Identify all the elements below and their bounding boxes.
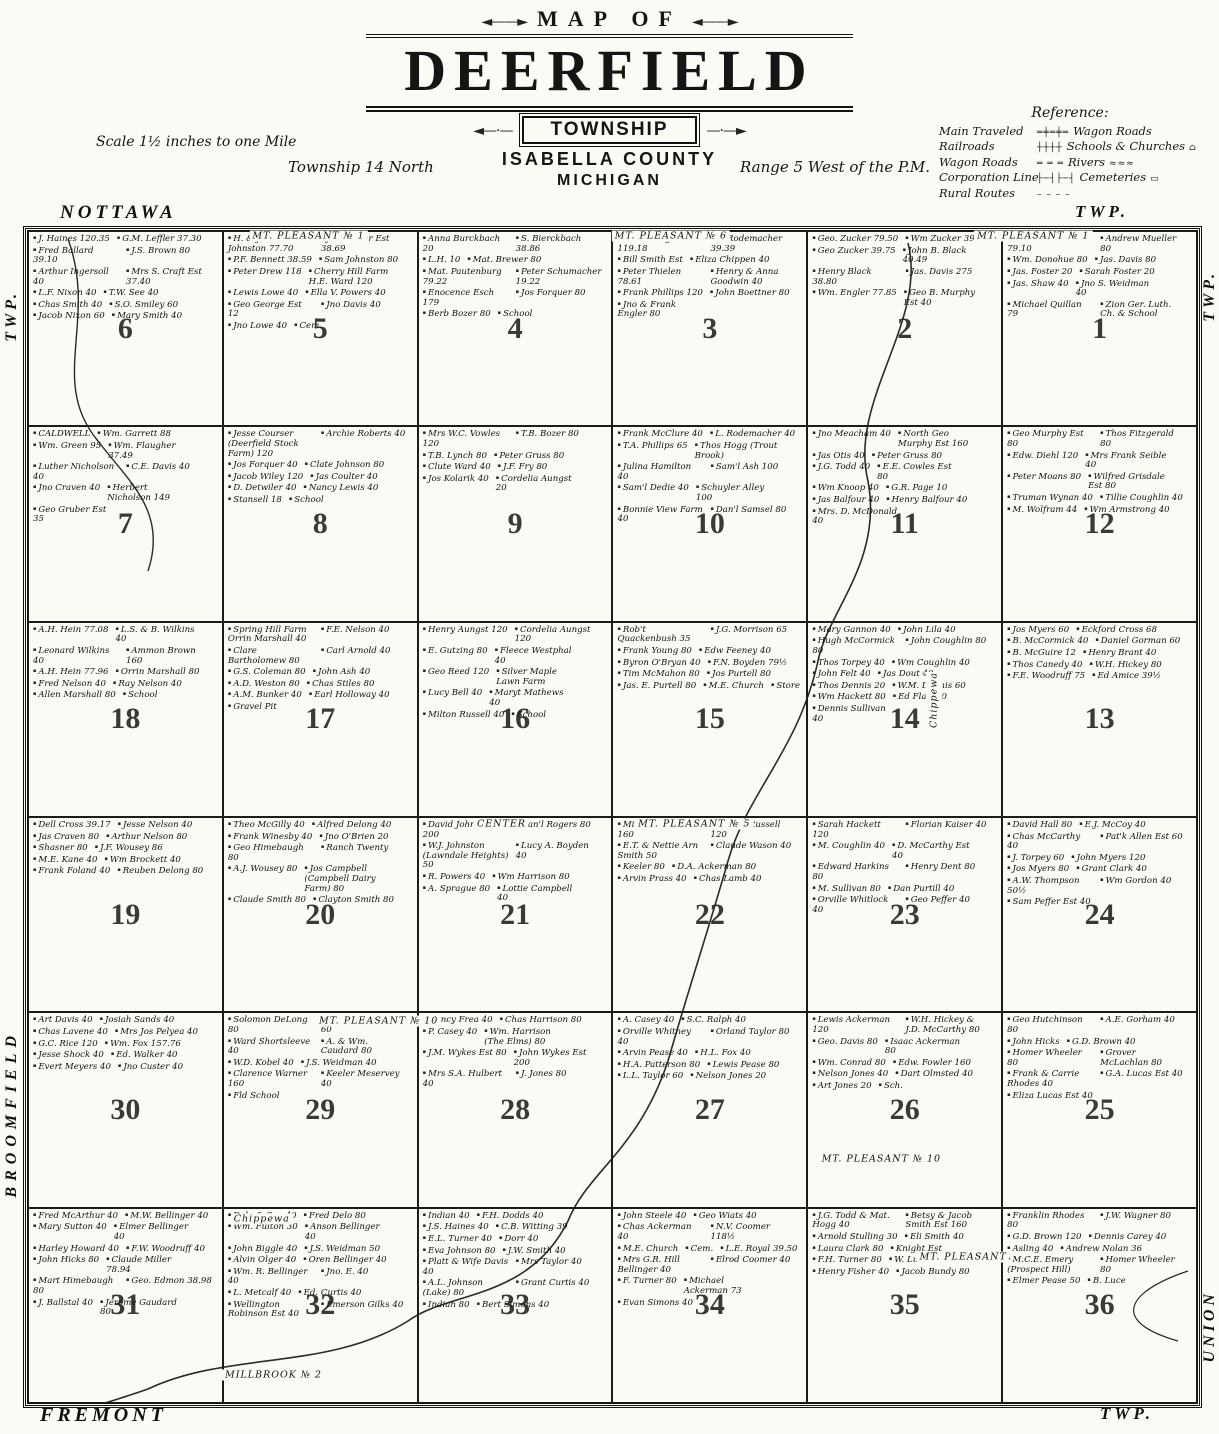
section-cell-23: Sarah Hackett 120Florian Kaiser 40M. Cou… xyxy=(807,817,1002,1012)
parcel-label: G.A. Lucas Est 40 xyxy=(1100,1070,1182,1089)
parcel-label: S.O. Smiley 60 xyxy=(109,301,178,311)
legend-symbol: ═ ═ ═ xyxy=(1037,158,1064,170)
parcel-label: Geo Murphy Est 80 xyxy=(1007,430,1093,449)
section-cell-36: Franklin Rhodes 80J.W. Wagner 80G.D. Bro… xyxy=(1002,1208,1197,1403)
parcel-label: Wm. Green 95 xyxy=(33,442,101,461)
parcel-label: Frank & Carrie Rhodes 40 xyxy=(1007,1070,1093,1089)
legend-row: Wagon Roads═ ═ ═Rivers≈≈≈ xyxy=(939,155,1201,171)
parcel-label: Betsy & Jacob Smith Est 160 xyxy=(905,1212,991,1231)
border-label-broomfield: BROOMFIELD xyxy=(3,1030,21,1198)
parcel-label: Lottie Campbell 40 xyxy=(497,885,583,904)
legend-right-label: Wagon Roads xyxy=(1073,124,1152,140)
parcel-label: A.J. Wousey 80 xyxy=(228,865,298,894)
parcel-label: Henry Fisher 40 xyxy=(812,1268,889,1278)
parcel-label: J.G. Morrison 65 xyxy=(710,626,787,645)
parcel-label: John Wykes Est 200 xyxy=(514,1049,600,1068)
section-cell-33: Indian 40F.H. Dodds 40J.S. Haines 40C.B.… xyxy=(418,1208,613,1403)
parcel-label: Keeler Meservey 40 xyxy=(321,1070,407,1089)
parcel-label: Dennis Carey 40 xyxy=(1089,1233,1167,1243)
parcel-label: Edw. Diehl 120 xyxy=(1007,452,1078,471)
parcel-label: T.B. Lynch 80 xyxy=(423,452,487,462)
section-cell-35: J.G. Todd & Mat. Hogg 40Betsy & Jacob Sm… xyxy=(807,1208,1002,1403)
parcel-label: Jos Forquer 40 xyxy=(228,461,298,471)
legend-symbol-2: ▭ xyxy=(1150,173,1160,185)
parcel-label: Shasner 80 xyxy=(33,844,88,854)
parcel-label: L.L. Taylor 60 xyxy=(617,1072,683,1082)
parcel-label: A.H. Hein 77.96 xyxy=(33,668,108,678)
parcel-label: Spring Hill Farm Orrin Marshall 40 xyxy=(228,626,314,645)
parcel-label: Julina Hamilton 40 xyxy=(617,463,703,482)
parcel-label: Wm Gordon 40 xyxy=(1100,877,1171,896)
parcel-label: W.H. Hickey & J.D. McCarthy 80 xyxy=(905,1016,991,1035)
parcel-label: Dell Cross 39.17 xyxy=(33,821,111,831)
legend-symbol-2: ⌂ xyxy=(1189,142,1197,154)
parcel-label: Silver Maple Lawn Farm xyxy=(496,668,582,687)
parcel-label: Mrs Frank Seible 40 xyxy=(1085,452,1171,471)
parcel-label: Jno Davis 40 xyxy=(321,301,381,320)
border-label-twp-top: TWP. xyxy=(1075,202,1129,222)
parcel-label: G.M. Leffler 37.30 xyxy=(117,235,202,245)
parcel-label: Arvin Prass 40 xyxy=(617,875,686,885)
parcel-label: F.H. Dodds 40 xyxy=(477,1212,544,1222)
section-number: 35 xyxy=(890,1288,920,1322)
parcel-label: R. Powers 40 xyxy=(423,873,486,883)
parcel-label: J.S. Haines 40 xyxy=(423,1223,489,1233)
parcel-label: Jno Custer 40 xyxy=(118,1063,183,1073)
parcel-label: Clarence Warner 160 xyxy=(228,1070,314,1089)
parcel-label: B. McGuire 12 xyxy=(1007,649,1076,659)
parcel-label: John Felt 40 xyxy=(812,670,870,680)
legend-symbol: ├─┤├─┤ xyxy=(1037,173,1076,185)
parcel-label: School xyxy=(511,711,546,721)
legend-right-label: Rivers xyxy=(1068,155,1105,171)
parcel-label: Wm. R. Bellinger 40 xyxy=(228,1268,314,1287)
section-cell-4: Anna Burckbach 20S. Bierckbach 38.86L.H.… xyxy=(418,231,613,426)
border-label-twp-bottom: TWP. xyxy=(1100,1404,1154,1424)
section-cell-1: Norman Webber 79.10Andrew Mueller 80Wm. … xyxy=(1002,231,1197,426)
parcel-label: Milton Russell 40 xyxy=(423,711,505,721)
parcel-label: Reuben Delong 80 xyxy=(117,867,203,877)
parcel-label: John Steele 40 xyxy=(617,1212,686,1222)
parcel-label: Jno S. Weidman 40 xyxy=(1076,280,1162,299)
parcel-label: Clate Johnson 80 xyxy=(305,461,385,471)
legend-left-label: Rural Routes xyxy=(939,186,1033,202)
parcel-label: Wilfred Grisdale Est 80 xyxy=(1088,473,1174,492)
parcel-label: Josiah Sands 40 xyxy=(100,1016,175,1026)
parcel-label: David Hall 80 xyxy=(1007,821,1072,831)
section-cell-10: Frank McClure 40L. Rodemacher 40T.A. Phi… xyxy=(612,426,807,621)
parcel-label: Harley Howard 40 xyxy=(33,1245,119,1255)
parcel-label: Grant Curtis 40 xyxy=(516,1279,590,1298)
parcel-label: L. Metcalf 40 xyxy=(228,1289,291,1299)
parcel-label: E.L. Turner 40 xyxy=(423,1235,492,1245)
parcel-label: Geo Zucker 39.75 xyxy=(812,247,895,266)
section-cell-15: Rob't Quackenbush 35J.G. Morrison 65Fran… xyxy=(612,622,807,817)
parcel-label: Elmer Pease 50 xyxy=(1007,1277,1080,1287)
parcel-label: Geo Wiats 40 xyxy=(693,1212,756,1222)
parcel-label: John Lila 40 xyxy=(898,626,956,636)
parcel-label: Asling 40 xyxy=(1007,1245,1053,1255)
parcel-label: Chas Ackerman 40 xyxy=(617,1223,703,1242)
parcel-label: Jos Forquer 80 xyxy=(516,289,586,308)
township-line: Township 14 North xyxy=(288,158,434,176)
parcel-label: Jno Meacham 40 xyxy=(812,430,891,449)
legend-symbol: ═╪═╪═ xyxy=(1037,127,1069,139)
parcel-label: J.F. Fry 80 xyxy=(498,463,548,473)
section-cell-12: Geo Murphy Est 80Thos Fitzgerald 80Edw. … xyxy=(1002,426,1197,621)
parcel-label: Jas. Foster 20 xyxy=(1007,268,1072,278)
parcel-label: B. Luce xyxy=(1087,1277,1125,1287)
parcel-label: John Myers 120 xyxy=(1071,854,1145,864)
section-cell-26: Lewis Ackerman 120W.H. Hickey & J.D. McC… xyxy=(807,1012,1002,1207)
parcel-label: Frank Phillips 120 xyxy=(617,289,702,299)
parcel-label: Thos Hogg (Trout Brook) xyxy=(695,442,781,461)
parcel-label: Jacob Bundy 80 xyxy=(896,1268,970,1278)
parcel-label: Sam Peffer Est 40 xyxy=(1007,898,1091,908)
section-cell-17: Spring Hill Farm Orrin Marshall 40F.E. N… xyxy=(223,622,418,817)
parcel-label: E.T. & Nettie Arn Smith 50 xyxy=(617,842,703,861)
parcel-label: Anna Burckbach 20 xyxy=(423,235,509,254)
section-number: 36 xyxy=(1085,1288,1115,1322)
parcel-label: Mary Sutton 40 xyxy=(33,1223,107,1242)
parcel-label: Wm. Conrad 80 xyxy=(812,1059,886,1069)
road-label: MT. PLEASANT № 1 xyxy=(249,230,367,241)
parcel-label: Lewis Pease 80 xyxy=(707,1061,779,1071)
parcel-label: Wm. Garrett 88 xyxy=(97,430,171,440)
parcel-label: C.B. Witting 39 xyxy=(496,1223,568,1233)
parcel-label: Clute Ward 40 xyxy=(423,463,491,473)
parcel-label: Arthur Nelson 80 xyxy=(106,833,187,843)
section-number: 2 xyxy=(897,312,912,346)
parcel-label: Mrs. D. McDonald 40 xyxy=(812,508,898,527)
parcel-label: Chas Lamb 40 xyxy=(694,875,762,885)
parcel-label: Isaac Ackerman 80 xyxy=(885,1038,971,1057)
parcel-label: B. McCormick 40 xyxy=(1007,637,1088,647)
parcel-label: Chas McCarthy 40 xyxy=(1007,833,1093,852)
parcel-label: Sarah Hackett 120 xyxy=(812,821,898,840)
legend-left-label: Corporation Line xyxy=(939,170,1033,186)
parcel-label: Jesse Shock 40 xyxy=(33,1051,104,1061)
parcel-label: J. Ballstal 40 xyxy=(33,1299,93,1318)
parcel-label: Daniel Gorman 60 xyxy=(1095,637,1180,647)
parcel-label: G.D. Brown 40 xyxy=(1067,1038,1136,1048)
parcel-label: Jas. Davis 275 xyxy=(905,268,972,287)
parcel-label: Orland Taylor 80 xyxy=(710,1028,789,1047)
parcel-label: Geo Gruber Est 35 xyxy=(33,506,119,525)
parcel-label: J. Torpey 60 xyxy=(1007,854,1064,864)
parcel-label: Jas. Shaw 40 xyxy=(1007,280,1068,299)
parcel-label: Allen Marshall 80 xyxy=(33,691,116,701)
parcel-label: Jacob Wiley 120 xyxy=(228,473,303,483)
parcel-label: Michael Ackerman 73 xyxy=(684,1277,770,1296)
legend-row: Rural Routes– – – – xyxy=(939,186,1201,202)
parcel-label: Tillie Coughlin 40 xyxy=(1100,494,1183,504)
legend-symbol-2: ≈≈≈ xyxy=(1109,158,1135,170)
parcel-label: Geo George Est 12 xyxy=(228,301,314,320)
parcel-label: Mrs Jos Pelyea 40 xyxy=(115,1028,198,1038)
parcel-label: M. Sullivan 80 xyxy=(812,885,881,895)
parcel-label: Ranch Twenty xyxy=(321,844,389,863)
parcel-label: Bill Smith Est xyxy=(617,256,682,266)
parcel-label: E.E. Cowles Est 80 xyxy=(877,463,963,482)
parcel-label: J.S. Brown 80 xyxy=(126,247,190,266)
parcel-label: Andrew Mueller 80 xyxy=(1100,235,1186,254)
parcel-label: S.C. Ralph 40 xyxy=(681,1016,746,1026)
map-of-label: MAP OF xyxy=(537,6,682,31)
parcel-label: W.J. Johnston (Lawndale Heights) 50 xyxy=(423,842,509,871)
parcel-label: A.D. Weston 80 xyxy=(228,680,300,690)
parcel-label: Arvin Pease 40 xyxy=(617,1049,687,1059)
section-cell-5: H. & John Johnston 77.70Jos. Weber Est 3… xyxy=(223,231,418,426)
parcel-label: Evan Simons 40 xyxy=(617,1299,692,1309)
parcel-label: Emerson Gilks 40 xyxy=(321,1301,404,1320)
parcel-label: Peter Gruss 80 xyxy=(494,452,564,462)
parcel-label: Maryt Mathews 40 xyxy=(489,689,575,708)
parcel-label: Henry & Anna Goodwin 40 xyxy=(710,268,796,287)
parcel-label: Nelson Jones 40 xyxy=(812,1070,888,1080)
parcel-label: M.W. Bellinger 40 xyxy=(125,1212,208,1222)
parcel-label: School xyxy=(123,691,158,701)
parcel-label: Jos Purtell 80 xyxy=(707,670,771,680)
parcel-label: E.J. McCoy 40 xyxy=(1079,821,1146,831)
section-cell-11: Jno Meacham 40North Geo Murphy Est 160Ja… xyxy=(807,426,1002,621)
parcel-label: Ward Shortsleeve 40 xyxy=(228,1038,314,1057)
flourish-arrow-left2: ◄—·— xyxy=(473,123,512,139)
parcel-label: Geo. Davis 80 xyxy=(812,1038,878,1057)
parcel-label: T.A. Phillips 65 xyxy=(617,442,687,461)
parcel-label: Frank Young 80 xyxy=(617,647,691,657)
parcel-label: Mat. Brewer 80 xyxy=(467,256,541,266)
parcel-label: Wm Hackett 80 xyxy=(812,693,885,703)
parcel-label: J. Jones 80 xyxy=(516,1070,567,1089)
section-cell-18: A.H. Hein 77.08L.S. & B. Wilkins 40Leona… xyxy=(28,622,223,817)
parcel-label: Andrew Nolan 36 xyxy=(1060,1245,1142,1255)
parcel-label: W.H. Hickey 80 xyxy=(1089,661,1161,671)
parcel-label: Cordelia Aungst 20 xyxy=(496,475,582,494)
parcel-label: Indian 80 xyxy=(423,1301,470,1311)
parcel-label: Enocence Esch 179 xyxy=(423,289,509,308)
parcel-label: Edward Harkins 80 xyxy=(812,863,898,882)
parcel-label: Jas Otis 40 xyxy=(812,452,864,462)
parcel-label: D. McCarthy Est 40 xyxy=(892,842,978,861)
parcel-label: Eli Smith 40 xyxy=(905,1233,964,1243)
parcel-label: Henry Balfour 40 xyxy=(886,496,967,506)
section-cell-34: John Steele 40Geo Wiats 40Chas Ackerman … xyxy=(612,1208,807,1403)
parcel-label: Orrin Marshall 80 xyxy=(115,668,199,678)
parcel-label: Jacob Nixon 60 xyxy=(33,312,105,322)
parcel-label: Eva Johnson 80 xyxy=(423,1247,496,1257)
parcel-label: Hugh McCormick 80 xyxy=(812,637,898,656)
parcel-label: Dorr 40 xyxy=(499,1235,538,1245)
section-cell-13: Jos Myers 60Eckford Cross 68B. McCormick… xyxy=(1002,622,1197,817)
parcel-label: W.D. Kobel 40 xyxy=(228,1059,294,1069)
parcel-label: Theo McGilly 40 xyxy=(228,821,305,831)
section-cell-6: J. Haines 120.35G.M. Leffler 37.30Fred B… xyxy=(28,231,223,426)
parcel-label: Jerome Gaudard 80 xyxy=(100,1299,186,1318)
parcel-label: Solomon DeLong 80 xyxy=(228,1016,314,1035)
map-header: ◄——►MAP OF◄——► DEERFIELD ◄—·—TOWNSHIP—·—… xyxy=(0,0,1219,228)
section-number: 13 xyxy=(1085,702,1115,736)
section-number: 8 xyxy=(313,507,328,541)
section-cell-20: Theo McGilly 40Alfred Delong 40Frank Win… xyxy=(223,817,418,1012)
parcel-label: Sam'l Ash 100 xyxy=(710,463,778,482)
parcel-label: Indian 40 xyxy=(423,1212,470,1222)
parcel-label: Jas Coulter 40 xyxy=(310,473,377,483)
legend-left-label: Main Traveled xyxy=(939,124,1033,140)
parcel-label: Lewis Lowe 40 xyxy=(228,289,298,299)
river-label: Chippewa xyxy=(925,672,942,728)
parcel-label: Fred Ballard 39.10 xyxy=(33,247,119,266)
parcel-label: Peter Drew 118 xyxy=(228,268,302,287)
parcel-label: A.L. Johnson (Lake) 80 xyxy=(423,1279,509,1298)
legend-left-label: Railroads xyxy=(939,139,1033,155)
parcel-label: Dan Purtill 40 xyxy=(888,885,954,895)
parcel-label: Jesse Courser (Deerfield Stock Farm) 120 xyxy=(228,430,314,459)
section-cell-7: CALDWELLWm. Garrett 88Wm. Green 95Wm. Fl… xyxy=(28,426,223,621)
parcel-label: CALDWELL xyxy=(33,430,90,440)
scale-note: Scale 1½ inches to one Mile xyxy=(96,134,296,150)
section-cell-22: Milton Russell 160Wesley Russell 120E.T.… xyxy=(612,817,807,1012)
parcel-label: Henry Dent 80 xyxy=(905,863,975,882)
section-cell-14: Mary Gannon 40John Lila 40Hugh McCormick… xyxy=(807,622,1002,817)
road-label: MILLBROOK № 2 xyxy=(222,1369,325,1380)
parcel-label: Tim McMahon 80 xyxy=(617,670,699,680)
parcel-label: Laura Clark 80 xyxy=(812,1245,883,1255)
range-line: Range 5 West of the P.M. xyxy=(740,158,930,176)
parcel-label: T.W. See 40 xyxy=(103,289,158,299)
parcel-label: Sam Johnston 80 xyxy=(319,256,398,266)
legend-right-label: Schools & Churches xyxy=(1067,139,1185,155)
river-label: Chippewa xyxy=(231,1213,293,1224)
parcel-label: Clare Bartholomew 80 xyxy=(228,647,314,666)
legend-title: Reference: xyxy=(939,104,1201,123)
parcel-label: G.S. Coleman 80 xyxy=(228,668,306,678)
parcel-label: Wm. Fulton 30 xyxy=(228,1223,298,1242)
parcel-label: A. Sprague 80 xyxy=(423,885,490,904)
parcel-label: John Biggle 40 xyxy=(228,1245,297,1255)
parcel-label: Earl Holloway 40 xyxy=(309,691,390,701)
township-label: TOWNSHIP xyxy=(522,116,696,144)
parcel-label: H.L. Fox 40 xyxy=(695,1049,751,1059)
parcel-label: Thos Fitzgerald 80 xyxy=(1100,430,1186,449)
section-number: 28 xyxy=(500,1093,530,1127)
parcel-label: Jno Craven 40 xyxy=(33,484,100,503)
parcel-label: Ray Nelson 40 xyxy=(113,680,182,690)
parcel-label: Lucy Bell 40 xyxy=(423,689,483,708)
parcel-label: Anson Bellinger 40 xyxy=(305,1223,391,1242)
section-cell-30: Art Davis 40Josiah Sands 40Chas Lavene 4… xyxy=(28,1012,223,1207)
parcel-label: Geo Himebaugh 80 xyxy=(228,844,314,863)
parcel-label: A.E. Gorham 40 xyxy=(1100,1016,1175,1035)
parcel-label: J.G. Todd 40 xyxy=(812,463,870,482)
parcel-label: Cordelia Aungst 120 xyxy=(515,626,601,645)
parcel-label: F.N. Boyden 79½ xyxy=(708,659,788,669)
parcel-label: Eliza Lucas Est 40 xyxy=(1007,1092,1093,1102)
parcel-label: J.W. Wagner 80 xyxy=(1100,1212,1171,1231)
parcel-label: Rob't Quackenbush 35 xyxy=(617,626,703,645)
parcel-label: Henry Aungst 120 xyxy=(423,626,508,645)
section-cell-28: Nancy Frea 40Chas Harrison 80P. Casey 40… xyxy=(418,1012,613,1207)
parcel-label: J.F. Wousey 86 xyxy=(95,844,163,854)
parcel-label: Stansell 18 xyxy=(228,496,282,506)
parcel-label: Art Jones 20 xyxy=(812,1082,871,1092)
parcel-label: G.C. Rice 120 xyxy=(33,1040,98,1050)
parcel-label: John Boettner 80 xyxy=(710,289,790,299)
border-label-union: UNION xyxy=(1201,1290,1219,1362)
parcel-label: Store xyxy=(771,682,800,692)
parcel-label: G.D. Brown 120 xyxy=(1007,1233,1081,1243)
legend-left-label: Wagon Roads xyxy=(939,155,1033,171)
parcel-label: Ed Amice 39½ xyxy=(1092,672,1161,682)
parcel-label: Mat. Pautenburg 79.22 xyxy=(423,268,509,287)
section-number: 9 xyxy=(508,507,523,541)
parcel-label: D. Detwiler 40 xyxy=(228,484,297,494)
road-label: MT. PLEASANT № 6 xyxy=(612,230,730,241)
road-label: MT. PLEASANT № 10 xyxy=(819,1154,944,1165)
parcel-label: Peter Thielen 78.61 xyxy=(617,268,703,287)
parcel-label: Frank McClure 40 xyxy=(617,430,702,440)
section-cell-2: Geo. Zucker 79.50Wm Zucker 39.75Geo Zuck… xyxy=(807,231,1002,426)
parcel-label: Orville Whitlock 40 xyxy=(812,896,898,915)
parcel-label: Fred McArthur 40 xyxy=(33,1212,118,1222)
parcel-label: F.H. Turner 80 xyxy=(812,1256,881,1266)
parcel-label: Jno. E. 40 xyxy=(321,1268,369,1287)
parcel-label: Jno Lowe 40 xyxy=(228,322,287,332)
parcel-label: Jas Craven 80 xyxy=(33,833,99,843)
parcel-label: John Ash 40 xyxy=(313,668,371,678)
parcel-label: Byron O'Bryan 40 xyxy=(617,659,700,669)
legend-row: Railroads┼┼┼┼Schools & Churches⌂ xyxy=(939,139,1201,155)
parcel-label: A.M. Bunker 40 xyxy=(228,691,302,701)
parcel-label: Lucy A. Boyden 40 xyxy=(516,842,602,871)
parcel-label: Ella V. Powers 40 xyxy=(305,289,385,299)
section-cell-8: Jesse Courser (Deerfield Stock Farm) 120… xyxy=(223,426,418,621)
parcel-label: Jno O'Brien 20 xyxy=(319,833,388,843)
parcel-label: Gravel Pit xyxy=(228,703,277,713)
parcel-label: L.E. Royal 39.50 xyxy=(720,1245,797,1255)
flourish-arrow-left: ◄——► xyxy=(481,14,527,30)
parcel-label: Eliza Chippen 40 xyxy=(690,256,770,266)
parcel-label: Dart Olmsted 40 xyxy=(895,1070,973,1080)
map-title: DEERFIELD xyxy=(366,34,852,112)
parcel-label: Edw. Fowler 160 xyxy=(893,1059,971,1069)
parcel-label: Mary Gannon 40 xyxy=(812,626,890,636)
parcel-label: Jas. Davis 80 xyxy=(1095,256,1157,266)
parcel-label: Bert Simons 40 xyxy=(477,1301,550,1311)
parcel-label: Fred Delo 80 xyxy=(304,1212,366,1222)
parcel-label: S. Bierckbach 38.86 xyxy=(516,235,602,254)
parcel-label: Wellington Robinson Est 40 xyxy=(228,1301,314,1320)
parcel-label: Lewis Ackerman 120 xyxy=(812,1016,898,1035)
section-cell-3: Theo Heugesbach 119.18L. Rodemacher 39.3… xyxy=(612,231,807,426)
parcel-label: A. & Wm. Caudard 80 xyxy=(321,1038,407,1057)
parcel-label: Clayton Smith 80 xyxy=(313,896,394,906)
parcel-label: Nelson Jones 20 xyxy=(690,1072,766,1082)
parcel-label: Frank Winesby 40 xyxy=(228,833,313,843)
parcel-label: Franklin Rhodes 80 xyxy=(1007,1212,1093,1231)
section-number: 26 xyxy=(890,1093,920,1127)
parcel-label: Geo Hutchinson 80 xyxy=(1007,1016,1093,1035)
parcel-label: Art Davis 40 xyxy=(33,1016,93,1026)
parcel-label: Wm. Fox 157.76 xyxy=(105,1040,181,1050)
parcel-label: J.M. Wykes Est 80 xyxy=(423,1049,507,1068)
parcel-label: Dennis Sullivan 40 xyxy=(812,705,898,724)
parcel-label: John Hicks xyxy=(1007,1038,1059,1048)
section-cell-27: A. Casey 40S.C. Ralph 40Orville Whitney … xyxy=(612,1012,807,1207)
parcel-label: Jos Campbell (Campbell Dairy Farm) 80 xyxy=(304,865,390,894)
section-number: 19 xyxy=(110,898,140,932)
parcel-label: M. Coughlin 40 xyxy=(812,842,885,861)
